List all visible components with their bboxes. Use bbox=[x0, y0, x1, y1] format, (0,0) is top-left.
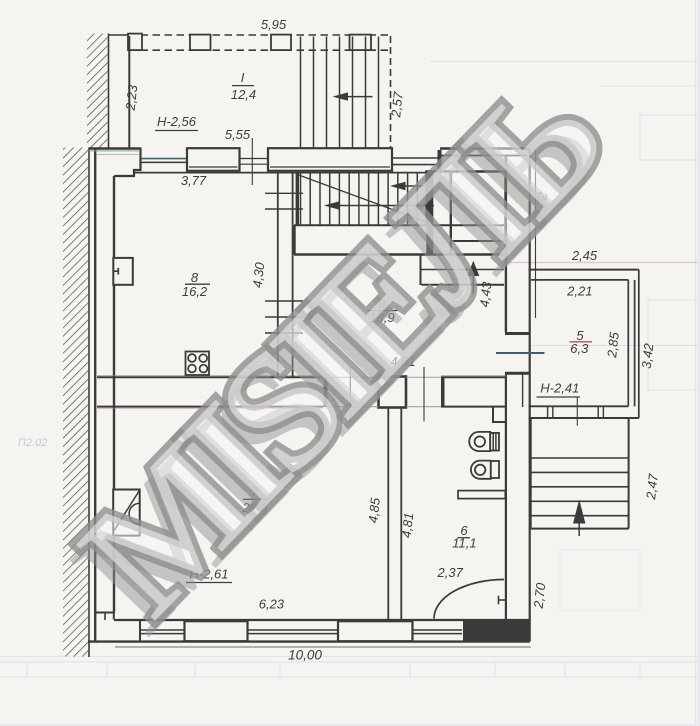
svg-text:2,45: 2,45 bbox=[571, 248, 598, 263]
svg-text:4,30: 4,30 bbox=[250, 261, 268, 288]
svg-text:2,70: 2,70 bbox=[531, 581, 549, 609]
svg-text:16,2: 16,2 bbox=[182, 284, 208, 299]
svg-text:I: I bbox=[241, 70, 245, 85]
svg-text:4,81: 4,81 bbox=[399, 512, 417, 539]
svg-text:2,37: 2,37 bbox=[437, 565, 464, 580]
svg-text:2,21: 2,21 bbox=[566, 284, 592, 299]
svg-text:12,4: 12,4 bbox=[231, 87, 256, 102]
svg-text:3,77: 3,77 bbox=[181, 173, 207, 188]
svg-text:П2.02: П2.02 bbox=[18, 437, 47, 449]
svg-text:8: 8 bbox=[191, 270, 199, 285]
svg-text:10,00: 10,00 bbox=[288, 648, 322, 663]
svg-text:6,3: 6,3 bbox=[570, 341, 589, 356]
svg-text:2,47: 2,47 bbox=[643, 472, 661, 500]
svg-text:2,23: 2,23 bbox=[123, 83, 141, 111]
svg-text:6,23: 6,23 bbox=[259, 597, 285, 612]
svg-text:Н-2,56: Н-2,56 bbox=[157, 114, 197, 129]
svg-text:4,85: 4,85 bbox=[365, 496, 383, 523]
svg-text:5,95: 5,95 bbox=[261, 17, 287, 32]
svg-text:2,57: 2,57 bbox=[388, 90, 406, 118]
svg-text:5,55: 5,55 bbox=[225, 127, 251, 142]
svg-text:3,42: 3,42 bbox=[639, 342, 657, 369]
svg-text:2,85: 2,85 bbox=[604, 331, 622, 359]
svg-text:Н-2,41: Н-2,41 bbox=[540, 381, 579, 396]
svg-text:11,1: 11,1 bbox=[452, 536, 476, 551]
